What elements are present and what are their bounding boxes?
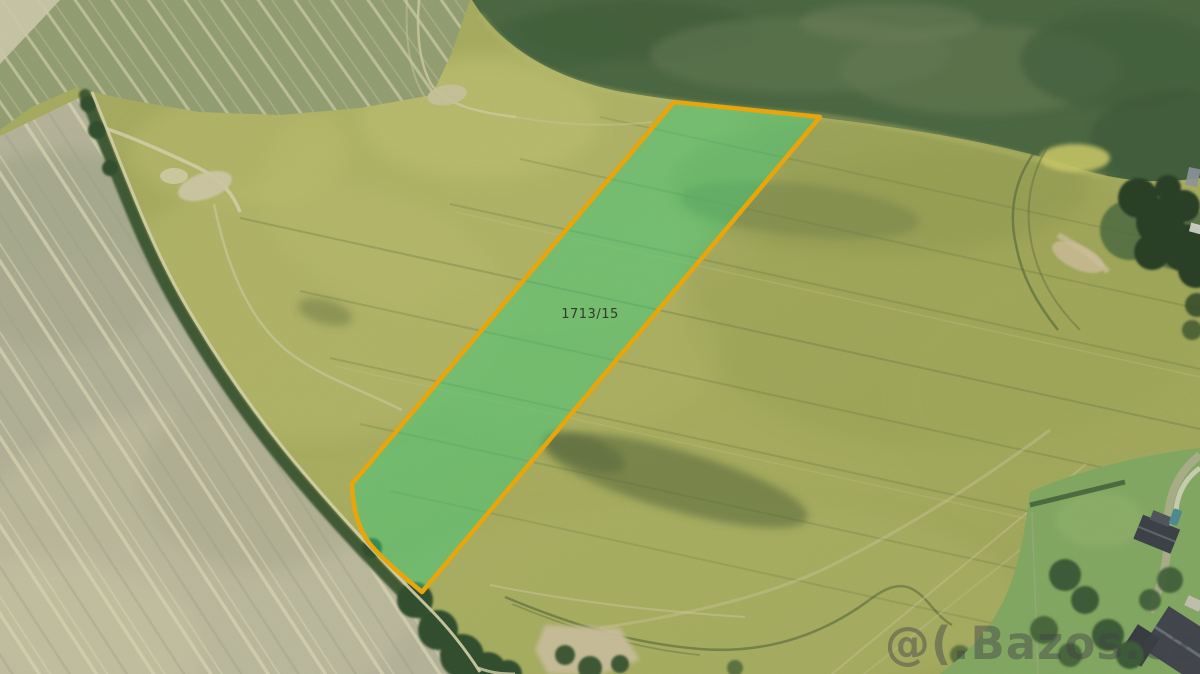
map-canvas: 1713/15 @(.Bazos.cz xyxy=(0,0,1200,674)
aerial-map-screenshot: 1713/15 @(.Bazos.cz xyxy=(0,0,1200,674)
photo-grain-overlay xyxy=(0,0,1200,674)
